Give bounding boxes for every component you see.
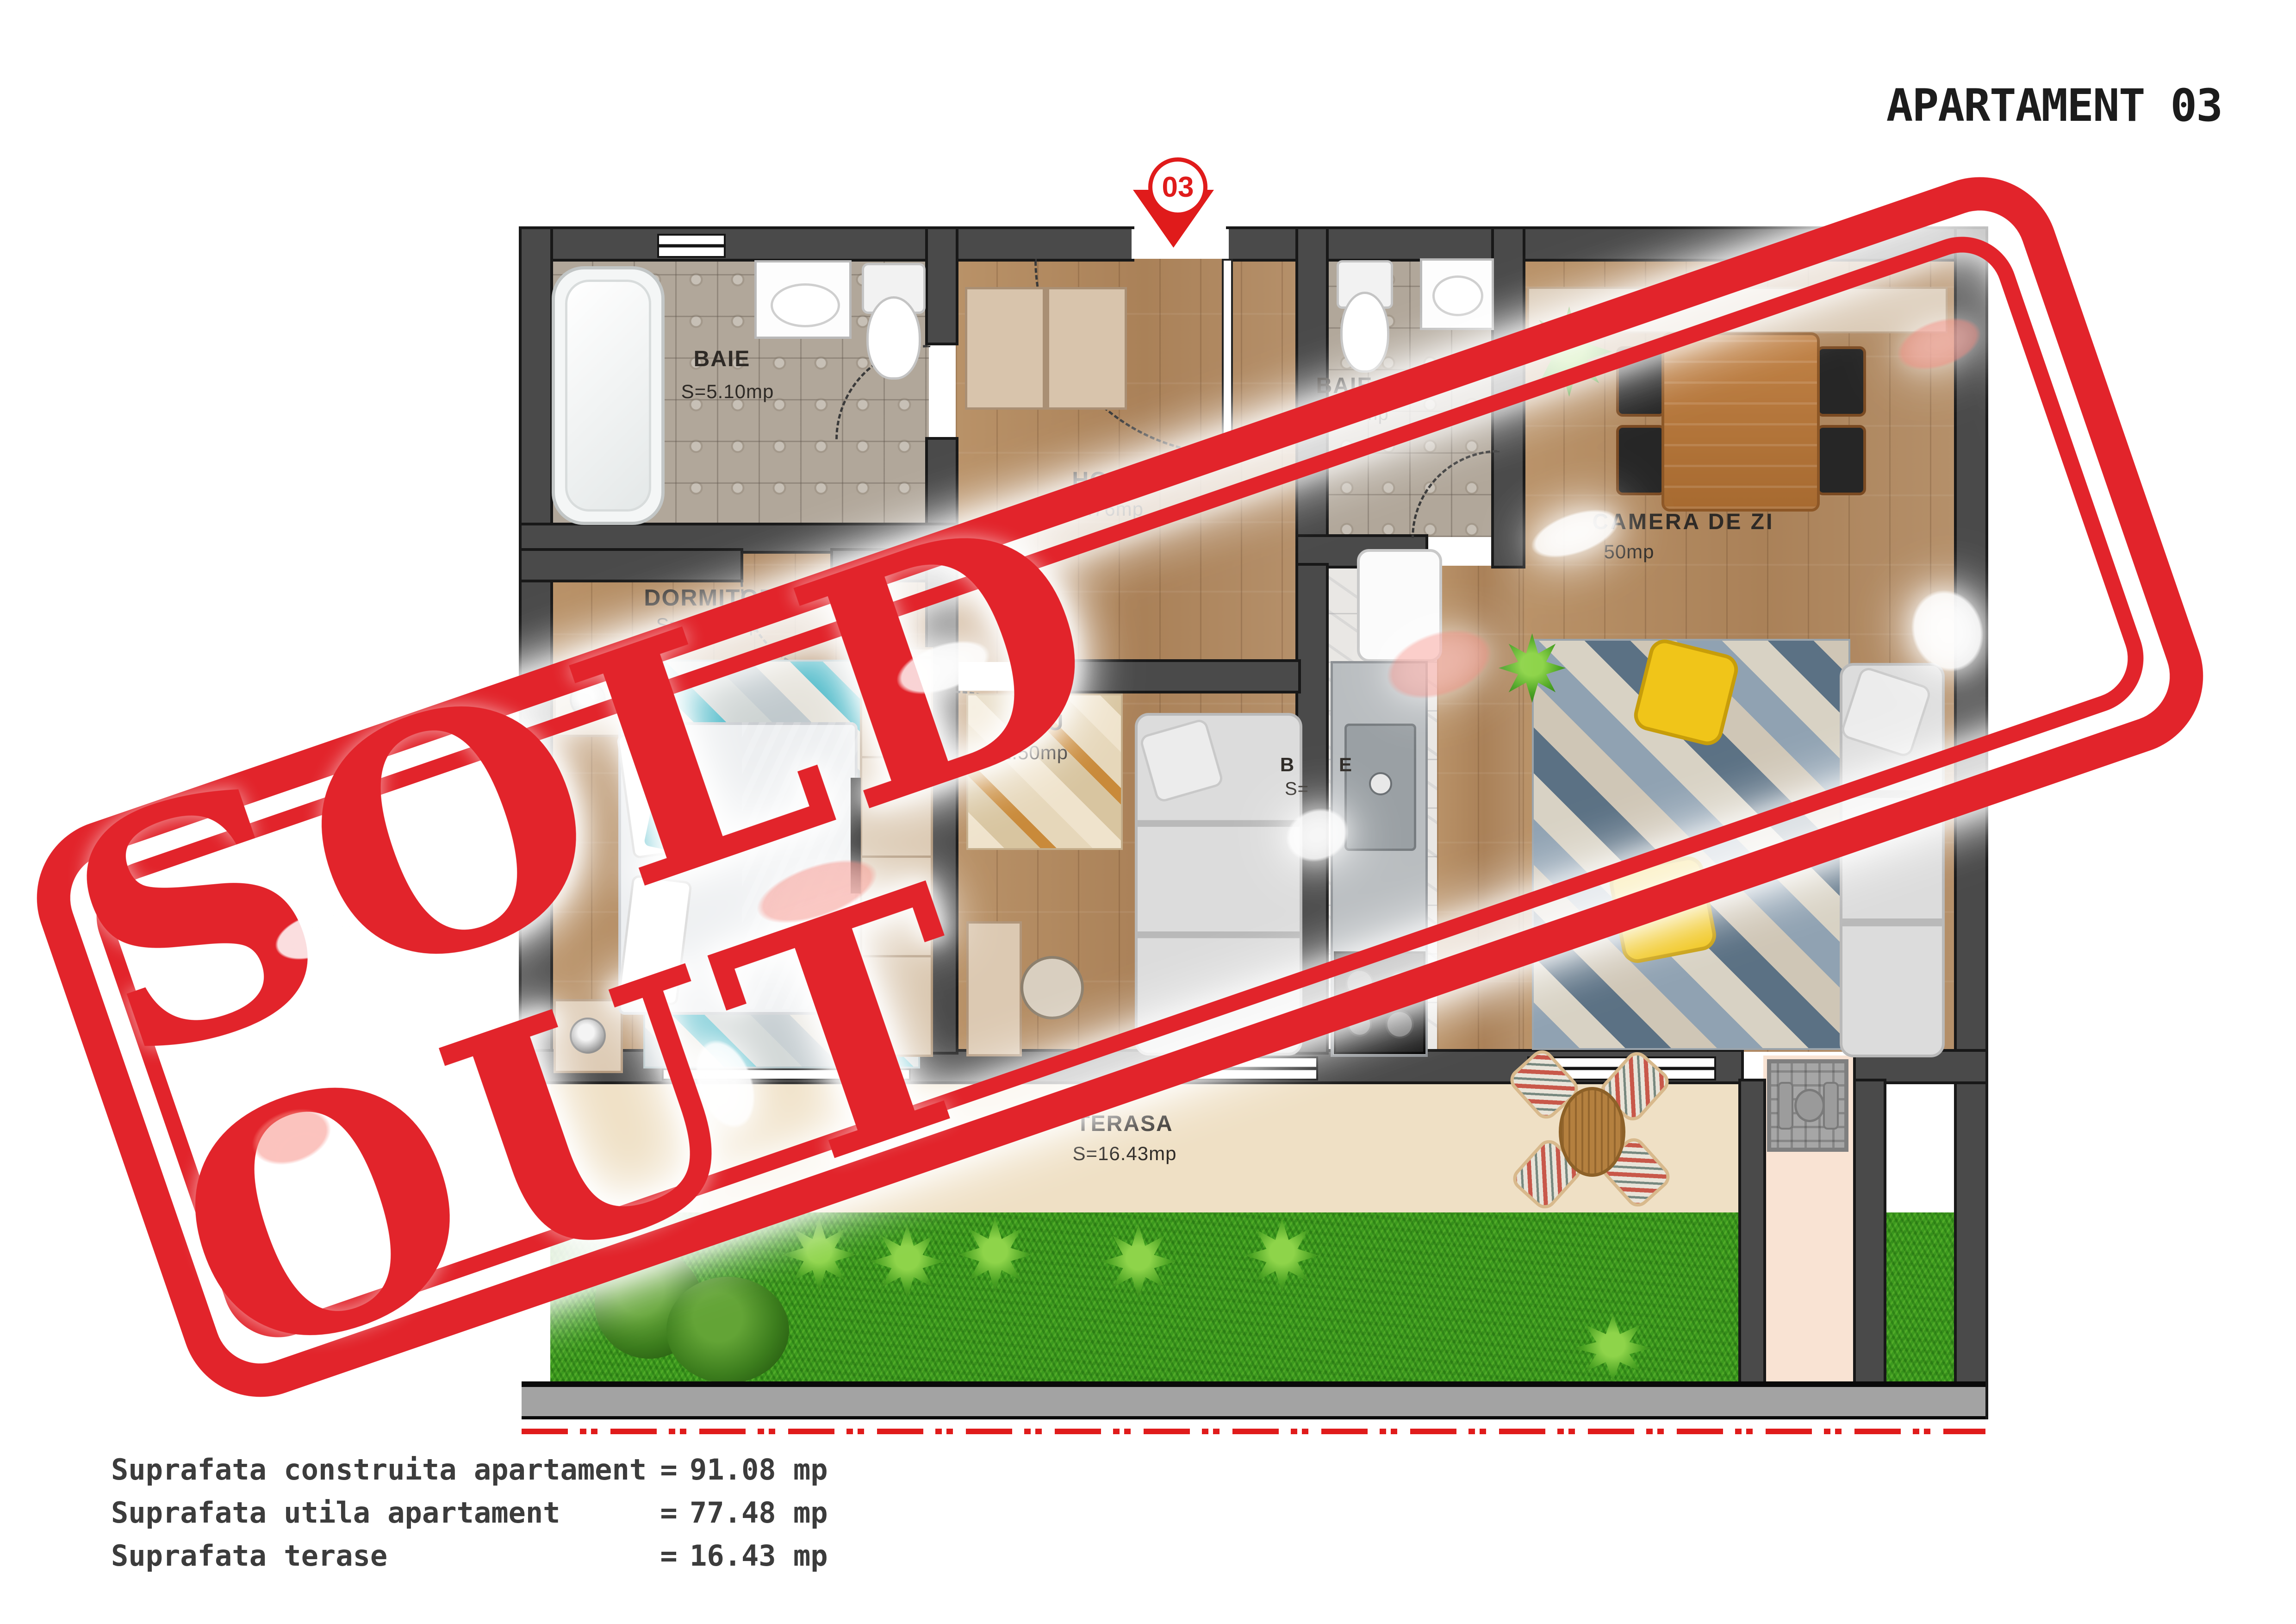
wall-top-left [522, 229, 1132, 259]
legend-value: 77.48 mp [690, 1496, 828, 1530]
legend-label: Suprafata utila apartament [111, 1496, 648, 1530]
legend-equals: = [648, 1539, 690, 1573]
surface-legend: Suprafata construita apartament = 91.08 … [111, 1448, 828, 1577]
bathtub-basin [565, 280, 651, 512]
grass-plant-icon [1245, 1218, 1319, 1293]
legend-label: Suprafata construita apartament [111, 1453, 648, 1487]
legend-value: 91.08 mp [690, 1453, 828, 1487]
grass-plant-icon [870, 1224, 944, 1299]
baie1-toilet [866, 296, 921, 380]
terrace-table [1559, 1087, 1625, 1177]
grass-plant-icon [1101, 1224, 1176, 1299]
manhole-cover [1767, 1059, 1848, 1152]
bathtub [552, 266, 665, 525]
manhole-slot [1778, 1082, 1793, 1130]
legend-row: Suprafata construita apartament = 91.08 … [111, 1448, 828, 1491]
property-line [522, 1429, 1985, 1434]
legend-equals: = [648, 1496, 690, 1530]
legend-equals: = [648, 1453, 690, 1487]
terasa-area: S=16.43mp [1073, 1143, 1177, 1165]
bush-icon [666, 1277, 789, 1383]
baie1-sink [754, 260, 852, 339]
wall-utility-left [1741, 1081, 1763, 1417]
page-title: APARTAMENT 03 [1886, 80, 2222, 131]
manhole-center [1794, 1089, 1825, 1122]
legend-label: Suprafata terase [111, 1539, 648, 1573]
baie1-sink-basin [771, 283, 840, 327]
hol-closet [965, 287, 1127, 410]
grass-plant-icon [958, 1218, 1032, 1292]
baie2-sink-basin [1432, 275, 1483, 316]
legend-row: Suprafata utila apartament = 77.48 mp [111, 1491, 828, 1534]
baie1-label: BAIE [694, 346, 751, 372]
legend-row: Suprafata terase = 16.43 mp [111, 1534, 828, 1577]
apartment-number-badge: 03 [1148, 157, 1207, 217]
baie1-area: S=5.10mp [681, 381, 774, 403]
wall-utility-right [1856, 1081, 1884, 1417]
retaining-wall-strip [522, 1381, 1985, 1419]
window-baie1 [657, 234, 726, 258]
manhole-slot [1823, 1082, 1839, 1130]
floor-plan-page: APARTAMENT 03 03 [0, 0, 2296, 1624]
legend-value: 16.43 mp [690, 1539, 828, 1573]
wall-baie1-hol-upper [928, 229, 956, 343]
garden-grass-right [1884, 1212, 1957, 1381]
entrance-marker: 03 [1133, 157, 1214, 248]
